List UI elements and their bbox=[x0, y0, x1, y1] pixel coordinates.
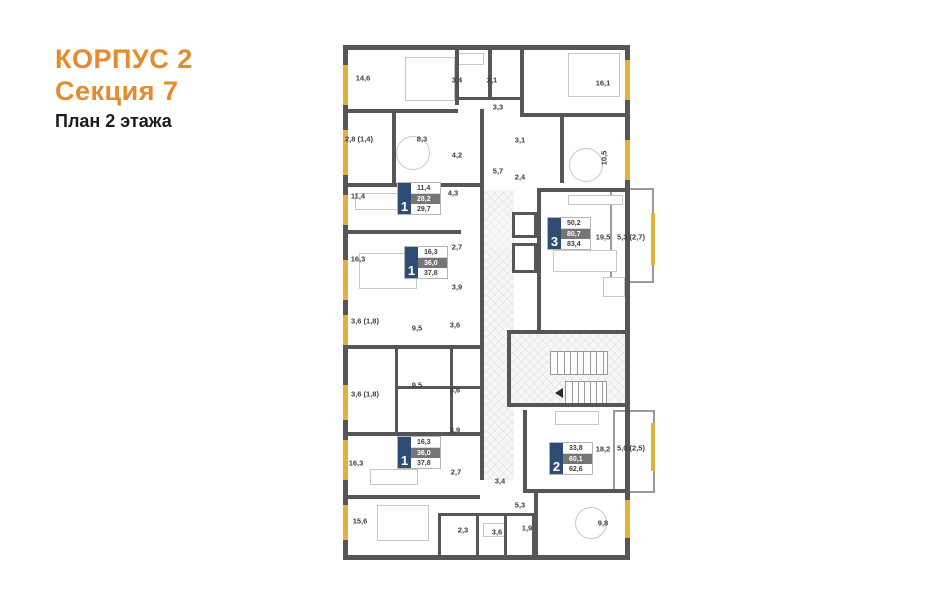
apartment-areas: 11,428,229,7 bbox=[411, 183, 440, 214]
dining-table-outline bbox=[569, 148, 603, 182]
wall-segment bbox=[392, 113, 396, 185]
apartment-badge: 111,428,229,7 bbox=[398, 183, 440, 214]
wall-segment bbox=[527, 489, 625, 493]
stair-step bbox=[603, 352, 604, 374]
apartment-areas: 33,860,162,6 bbox=[563, 443, 592, 474]
wall-segment bbox=[343, 45, 630, 50]
stair-step bbox=[564, 352, 565, 374]
room-area-label: 4,3 bbox=[448, 189, 458, 198]
page: КОРПУС 2 Секция 7 План 2 этажа 14,63,42,… bbox=[0, 0, 941, 600]
area-main: 36,0 bbox=[418, 258, 447, 268]
window-segment bbox=[651, 423, 655, 471]
building-title: КОРПУС 2 bbox=[55, 44, 193, 76]
furniture-outline bbox=[568, 195, 623, 205]
stair-step bbox=[590, 382, 591, 404]
apartment-badge: 233,860,162,6 bbox=[550, 443, 592, 474]
area-main: 60,1 bbox=[563, 454, 592, 464]
furniture-outline bbox=[458, 53, 484, 65]
room-area-label: 2,1 bbox=[487, 76, 497, 85]
furniture-outline bbox=[568, 53, 620, 97]
wall-segment bbox=[520, 50, 524, 113]
wall-segment bbox=[507, 330, 630, 334]
area-living: 33,8 bbox=[563, 443, 592, 454]
stair-step bbox=[572, 382, 573, 404]
room-area-label: 3,6 (1,8) bbox=[351, 390, 379, 399]
apartment-number: 3 bbox=[548, 218, 561, 249]
room-area-label: 9,5 bbox=[412, 324, 422, 333]
window-segment bbox=[343, 260, 348, 300]
wall-segment bbox=[438, 513, 441, 558]
room-area-label: 3,6 bbox=[450, 386, 460, 395]
furniture-outline bbox=[553, 250, 617, 272]
wall-segment bbox=[343, 230, 461, 234]
room-area-label: 5,7 bbox=[493, 167, 503, 176]
area-total: 37,8 bbox=[411, 458, 440, 468]
furniture-outline bbox=[370, 469, 418, 485]
room-area-label: 1,9 bbox=[522, 524, 532, 533]
stair-step bbox=[602, 382, 603, 404]
window-segment bbox=[343, 505, 348, 540]
window-segment bbox=[343, 195, 348, 225]
stair-step bbox=[570, 352, 571, 374]
stair-step bbox=[584, 382, 585, 404]
elevator-shaft bbox=[512, 243, 537, 273]
title-block: КОРПУС 2 Секция 7 План 2 этажа bbox=[55, 44, 193, 132]
room-area-label: 3,6 bbox=[492, 528, 502, 537]
stair-flight-upper bbox=[550, 351, 608, 375]
wall-segment bbox=[476, 513, 479, 558]
room-area-label: 2,8 (1,4) bbox=[345, 135, 373, 144]
floor-plan: 14,63,42,116,13,32,8 (1,4)8,33,14,210,55… bbox=[343, 45, 661, 560]
room-area-label: 3,6 bbox=[450, 321, 460, 330]
wall-segment bbox=[625, 45, 630, 560]
stair-direction-arrow bbox=[555, 388, 563, 398]
room-area-label: 15,6 bbox=[353, 517, 368, 526]
room-area-label: 10,5 bbox=[600, 151, 609, 166]
room-area-label: 18,2 bbox=[596, 445, 611, 454]
stair-step bbox=[557, 352, 558, 374]
room-area-label: 2,7 bbox=[451, 468, 461, 477]
wall-segment bbox=[537, 188, 541, 334]
room-area-label: 5,3 bbox=[515, 501, 525, 510]
apartment-areas: 16,336,037,8 bbox=[411, 437, 440, 468]
room-area-label: 3,9 bbox=[450, 426, 460, 435]
wall-segment bbox=[343, 555, 630, 560]
stair-step bbox=[577, 352, 578, 374]
area-total: 29,7 bbox=[411, 204, 440, 214]
room-area-label: 16,1 bbox=[596, 79, 611, 88]
wall-segment bbox=[455, 97, 524, 100]
area-living: 16,3 bbox=[411, 437, 440, 448]
room-area-label: 3,3 bbox=[493, 103, 503, 112]
wall-segment bbox=[343, 45, 348, 560]
furniture-outline bbox=[603, 277, 625, 297]
wall-segment bbox=[507, 330, 511, 407]
room-area-label: 3,4 bbox=[452, 76, 462, 85]
window-segment bbox=[343, 65, 348, 105]
stair-step bbox=[596, 382, 597, 404]
room-area-label: 5,0 (2,5) bbox=[617, 444, 645, 453]
area-main: 28,2 bbox=[411, 194, 440, 204]
wall-segment bbox=[343, 495, 480, 499]
room-area-label: 2,7 bbox=[452, 243, 462, 252]
room-area-label: 19,5 bbox=[596, 233, 611, 242]
wall-segment bbox=[540, 188, 630, 192]
wall-segment bbox=[560, 113, 564, 183]
floor-title: План 2 этажа bbox=[55, 111, 193, 132]
wall-segment bbox=[507, 403, 630, 407]
apartment-badge: 350,280,783,4 bbox=[548, 218, 590, 249]
wall-segment bbox=[343, 109, 458, 113]
apartment-badge: 116,336,037,8 bbox=[398, 437, 440, 468]
elevator-shaft bbox=[512, 212, 537, 238]
room-area-label: 16,3 bbox=[349, 459, 364, 468]
window-segment bbox=[343, 385, 348, 420]
section-title: Секция 7 bbox=[55, 76, 193, 108]
window-segment bbox=[625, 500, 630, 538]
furniture-outline bbox=[377, 505, 429, 541]
room-area-label: 3,1 bbox=[515, 136, 525, 145]
window-segment bbox=[625, 60, 630, 100]
wall-segment bbox=[534, 489, 538, 559]
room-area-label: 9,5 bbox=[412, 381, 422, 390]
room-area-label: 3,6 (1,8) bbox=[351, 317, 379, 326]
area-main: 36,0 bbox=[411, 448, 440, 458]
apartment-number: 2 bbox=[550, 443, 563, 474]
apartment-number: 1 bbox=[398, 437, 411, 468]
wall-segment bbox=[395, 386, 480, 389]
wall-segment bbox=[480, 109, 484, 480]
wall-segment bbox=[523, 410, 527, 493]
window-segment bbox=[651, 213, 655, 265]
stair-step bbox=[583, 352, 584, 374]
window-segment bbox=[625, 140, 630, 180]
stair-step bbox=[596, 352, 597, 374]
room-area-label: 2,4 bbox=[515, 173, 525, 182]
area-total: 62,6 bbox=[563, 464, 592, 474]
room-area-label: 4,2 bbox=[452, 151, 462, 160]
area-main: 80,7 bbox=[561, 229, 590, 239]
wall-segment bbox=[520, 113, 630, 117]
apartment-number: 1 bbox=[405, 247, 418, 278]
stair-step bbox=[590, 352, 591, 374]
furniture-outline bbox=[405, 57, 455, 101]
apartment-badge: 116,336,037,8 bbox=[405, 247, 447, 278]
area-total: 37,8 bbox=[418, 268, 447, 278]
room-area-label: 3,4 bbox=[495, 477, 505, 486]
area-living: 11,4 bbox=[411, 183, 440, 194]
room-area-label: 2,3 bbox=[458, 526, 468, 535]
apartment-number: 1 bbox=[398, 183, 411, 214]
room-area-label: 3,9 bbox=[452, 283, 462, 292]
area-living: 50,2 bbox=[561, 218, 590, 229]
area-living: 16,3 bbox=[418, 247, 447, 258]
stair-flight-lower bbox=[565, 381, 607, 405]
room-area-label: 16,3 bbox=[351, 255, 366, 264]
room-area-label: 8,3 bbox=[417, 135, 427, 144]
wall-segment bbox=[504, 513, 507, 558]
room-area-label: 9,8 bbox=[598, 519, 608, 528]
window-segment bbox=[343, 440, 348, 480]
area-total: 83,4 bbox=[561, 239, 590, 249]
apartment-areas: 50,280,783,4 bbox=[561, 218, 590, 249]
window-segment bbox=[343, 315, 348, 345]
stair-step bbox=[578, 382, 579, 404]
wall-segment bbox=[438, 513, 538, 516]
furniture-outline bbox=[555, 411, 599, 425]
wall-segment bbox=[343, 345, 483, 349]
room-area-label: 11,4 bbox=[351, 192, 365, 201]
apartment-areas: 16,336,037,8 bbox=[418, 247, 447, 278]
room-area-label: 5,3 (2,7) bbox=[617, 233, 645, 242]
room-area-label: 14,6 bbox=[356, 74, 371, 83]
